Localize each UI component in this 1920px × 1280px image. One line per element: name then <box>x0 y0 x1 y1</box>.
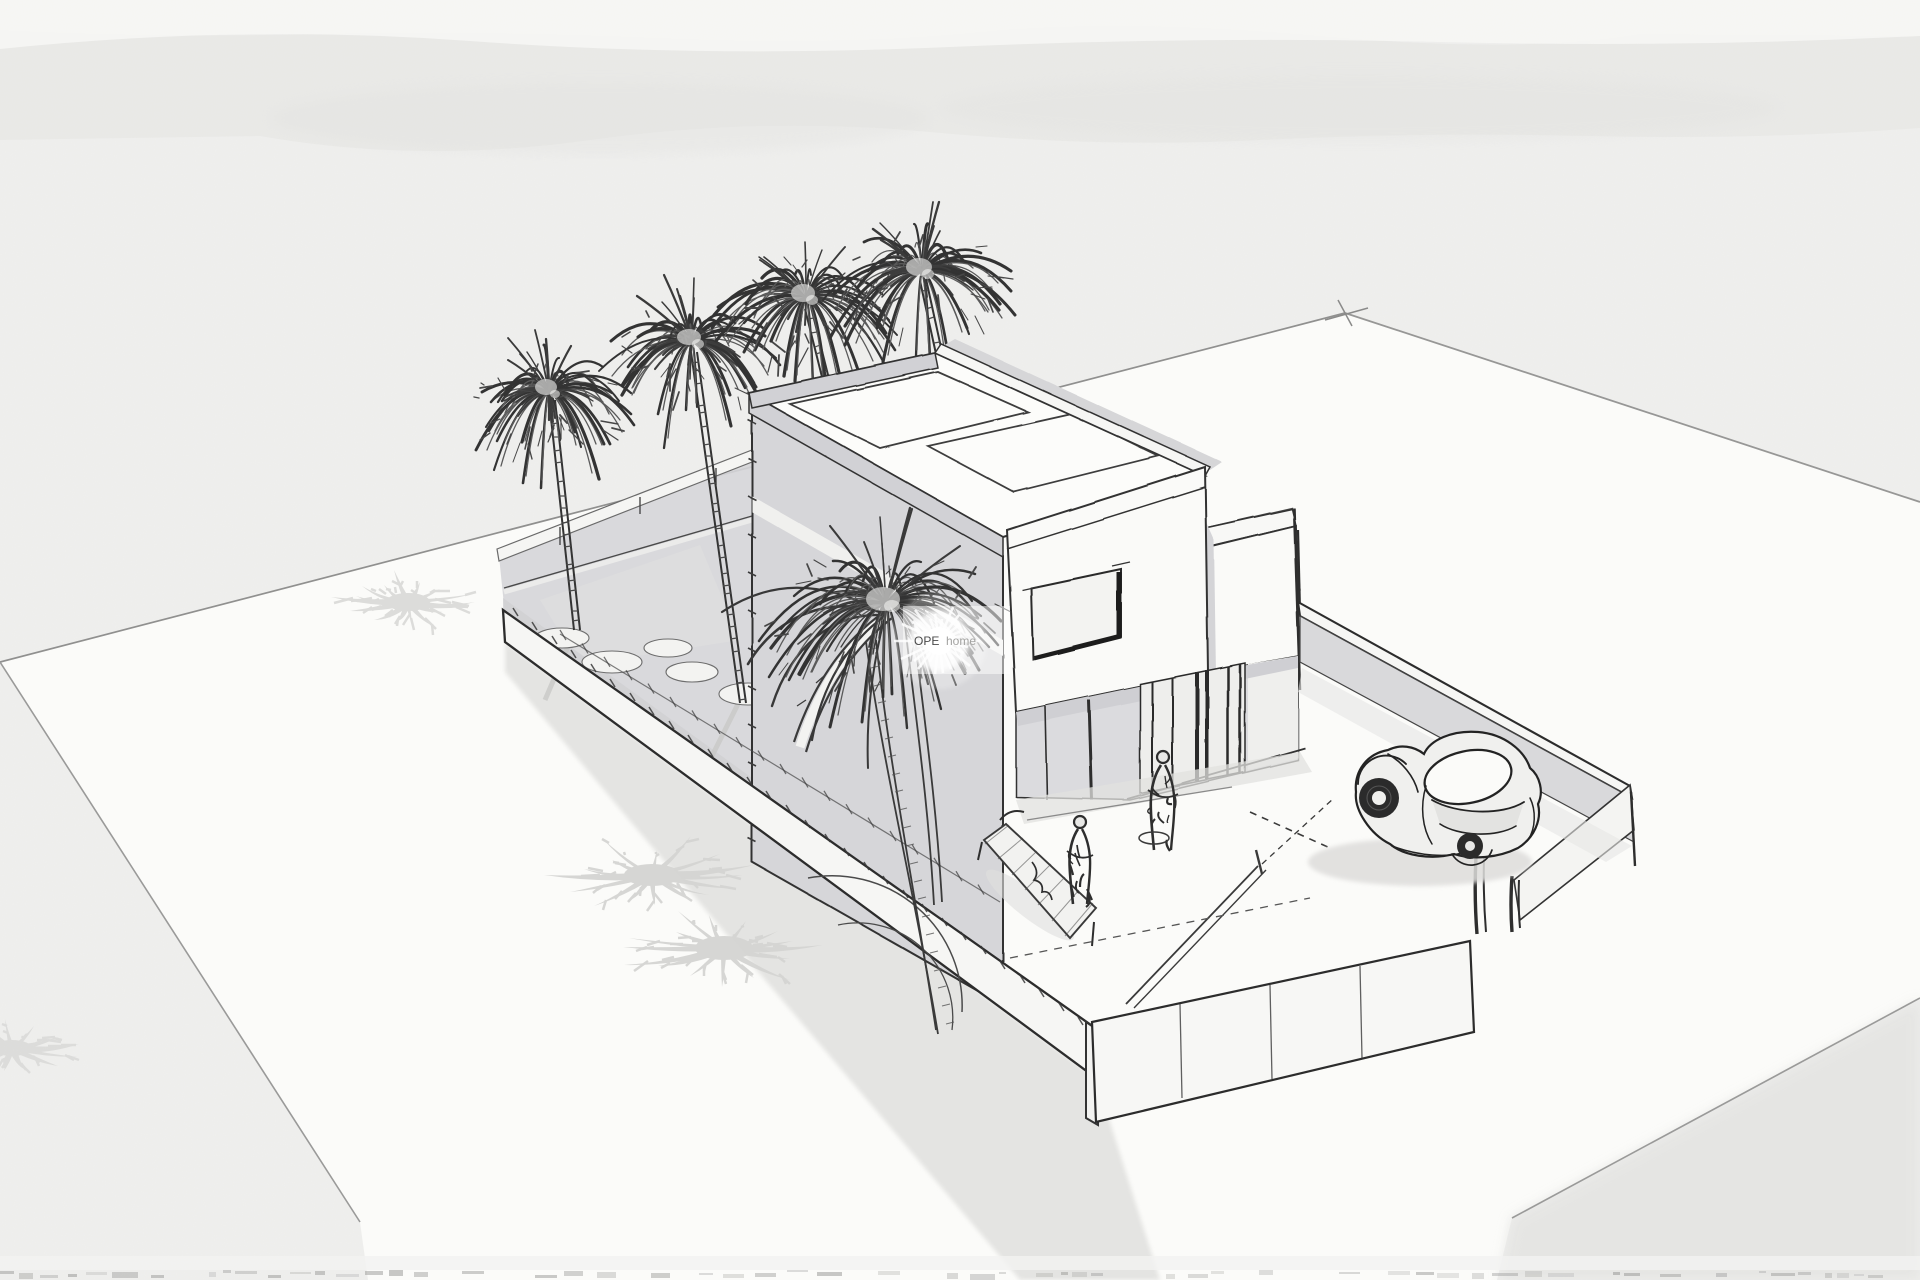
svg-text:home: home <box>946 634 976 648</box>
svg-text:OPE: OPE <box>914 634 939 648</box>
